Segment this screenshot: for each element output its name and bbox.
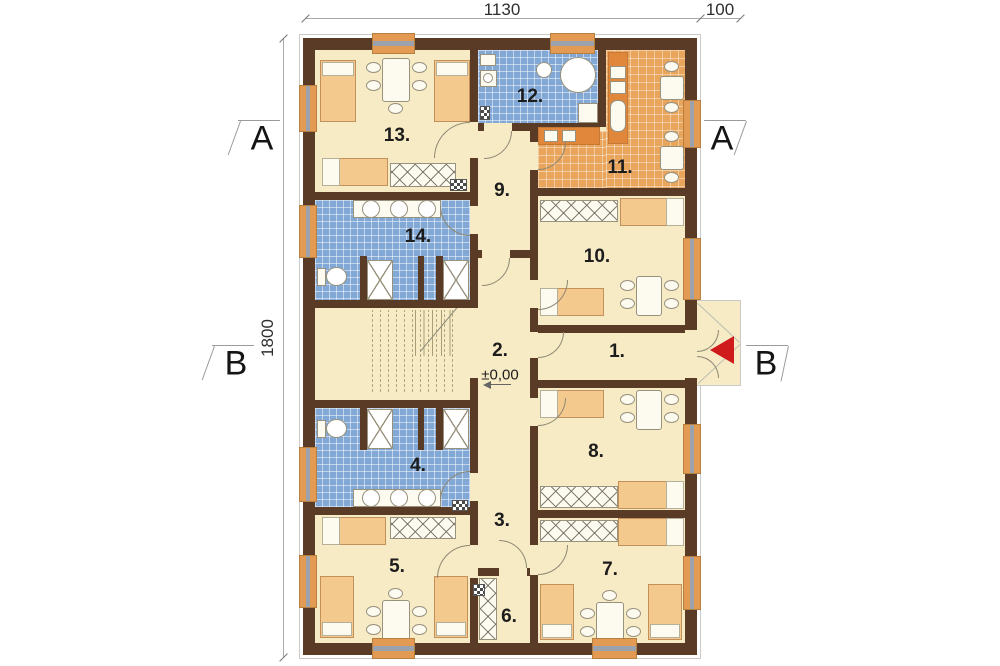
door-opening	[470, 122, 478, 158]
chair	[620, 394, 635, 405]
chair	[664, 412, 679, 423]
wardrobe	[390, 163, 456, 187]
sink	[536, 62, 552, 78]
room-label-10: 10.	[584, 246, 610, 268]
wall	[315, 192, 478, 200]
chair	[664, 102, 679, 113]
chair	[366, 62, 381, 73]
window	[683, 238, 701, 300]
window	[683, 100, 701, 148]
room-label-13: 13.	[384, 125, 410, 147]
dim-top-main: 1130	[484, 0, 521, 20]
kitchen-sink	[610, 100, 626, 132]
shower	[443, 409, 469, 449]
chair	[626, 626, 641, 637]
washing-machine-drum	[483, 73, 493, 83]
door-opening	[530, 142, 538, 170]
room-label-8: 8.	[588, 441, 604, 463]
bathtub	[560, 57, 596, 93]
bed-pillow	[650, 624, 680, 638]
shower	[367, 409, 393, 449]
window	[299, 205, 317, 258]
window	[372, 33, 415, 54]
table	[660, 76, 684, 100]
radiator	[480, 106, 490, 120]
window	[683, 556, 701, 610]
room-label-3: 3.	[494, 510, 510, 532]
wall	[315, 300, 478, 308]
wall-exterior-bottom	[303, 643, 697, 655]
radiator	[452, 500, 468, 511]
wall	[538, 188, 685, 196]
wall-stub	[360, 256, 367, 300]
bed-pillow	[322, 517, 340, 545]
table	[596, 602, 624, 642]
bed-pillow	[322, 62, 354, 76]
room-label-14: 14.	[405, 226, 431, 248]
toilet-bowl	[326, 419, 347, 438]
section-a-right: A	[711, 120, 734, 159]
door-opening	[470, 473, 478, 501]
door-opening	[470, 206, 478, 234]
sink	[418, 489, 436, 507]
wall	[538, 510, 685, 518]
wardrobe	[540, 486, 618, 508]
corner-sink	[480, 54, 496, 66]
chair	[412, 62, 427, 73]
stove	[610, 81, 626, 94]
toilet-tank	[317, 420, 326, 438]
sink	[418, 200, 436, 218]
sink	[362, 489, 380, 507]
bed-pillow	[436, 622, 466, 636]
level-marker-line	[491, 384, 511, 385]
stove	[610, 66, 626, 79]
chair	[366, 606, 381, 617]
wall-stub	[510, 250, 538, 258]
section-a-right-slash	[734, 121, 747, 155]
radiator	[473, 584, 485, 596]
toilet-tank	[317, 268, 326, 286]
table	[660, 146, 684, 170]
bed-pillow	[542, 624, 572, 638]
sink	[578, 103, 598, 123]
window	[550, 33, 595, 54]
wall-stub	[418, 256, 424, 300]
dim-left-height: 1800	[258, 319, 278, 357]
chair	[366, 624, 381, 635]
dim-top-porch: 100	[706, 0, 734, 20]
chair	[388, 588, 403, 599]
room-label-12: 12.	[517, 86, 543, 108]
dim-line-top	[305, 18, 741, 19]
window	[299, 555, 317, 608]
chair	[664, 394, 679, 405]
chair	[580, 608, 595, 619]
wall-thin	[538, 123, 606, 127]
chair	[412, 606, 427, 617]
sink	[390, 200, 408, 218]
chair	[664, 298, 679, 309]
chair	[620, 298, 635, 309]
chair	[366, 80, 381, 91]
table	[382, 58, 410, 102]
chair	[664, 280, 679, 291]
chair	[620, 412, 635, 423]
window	[299, 447, 317, 502]
radiator	[450, 179, 467, 191]
wall	[598, 50, 606, 127]
wall	[470, 50, 478, 300]
table	[636, 390, 662, 430]
bed-pillow	[666, 481, 684, 509]
window	[683, 424, 701, 474]
dim-line-left	[283, 38, 284, 657]
bed-pillow	[666, 198, 684, 226]
room-label-4: 4.	[410, 455, 426, 477]
room-label-5: 5.	[389, 556, 405, 578]
wall-stub	[436, 256, 443, 300]
window	[299, 85, 317, 132]
bed-pillow	[322, 158, 340, 186]
chair	[388, 103, 403, 114]
door-opening-entrance	[685, 330, 697, 378]
counter-appliance	[544, 130, 558, 142]
wall-stub	[436, 408, 443, 450]
wall	[538, 380, 685, 388]
door-opening	[530, 545, 538, 575]
room-label-9: 9.	[494, 180, 510, 202]
bed-pillow	[436, 62, 468, 76]
chair	[580, 626, 595, 637]
wardrobe	[540, 520, 618, 542]
wall	[315, 400, 478, 408]
chair	[664, 172, 679, 183]
sink	[390, 489, 408, 507]
shower	[443, 260, 469, 300]
room-label-11: 11.	[607, 157, 632, 179]
section-a-left-slash	[228, 121, 241, 155]
window	[372, 638, 415, 659]
room-label-7: 7.	[602, 559, 618, 581]
chair	[620, 280, 635, 291]
wardrobe	[390, 517, 456, 539]
bed-pillow	[322, 622, 352, 636]
table	[636, 276, 662, 316]
door-opening	[530, 280, 538, 308]
bed-pillow	[666, 518, 684, 546]
level-marker-arrow	[483, 381, 491, 389]
chair	[412, 80, 427, 91]
room-label-2: 2.	[492, 340, 508, 362]
chair	[626, 608, 641, 619]
room-label-6: 6.	[501, 606, 517, 628]
table	[382, 600, 410, 642]
door-opening	[484, 123, 512, 131]
door-opening	[530, 398, 538, 426]
toilet-bowl	[326, 267, 347, 286]
wardrobe	[540, 200, 618, 222]
door-opening	[482, 250, 510, 258]
section-b-right: B	[755, 345, 778, 384]
door-opening	[530, 332, 538, 358]
counter-appliance	[562, 130, 576, 142]
section-b-left: B	[225, 345, 248, 384]
chair	[664, 131, 679, 142]
section-b-right-slash	[781, 346, 789, 381]
wall-stub	[470, 250, 482, 258]
chair	[602, 590, 617, 601]
wall-exterior-top	[303, 38, 697, 50]
sink	[362, 200, 380, 218]
door-opening	[470, 545, 478, 578]
section-a-left: A	[251, 120, 274, 159]
shower	[367, 260, 393, 300]
room-label-1: 1.	[609, 341, 625, 363]
chair	[412, 624, 427, 635]
wall-stub	[360, 408, 367, 450]
floor-plan: 1130 100 1800 A A B B	[0, 0, 1000, 666]
wall-stub	[418, 408, 424, 450]
window	[592, 638, 637, 659]
door-opening	[499, 568, 527, 576]
section-b-left-slash	[202, 346, 215, 380]
chair	[664, 61, 679, 72]
